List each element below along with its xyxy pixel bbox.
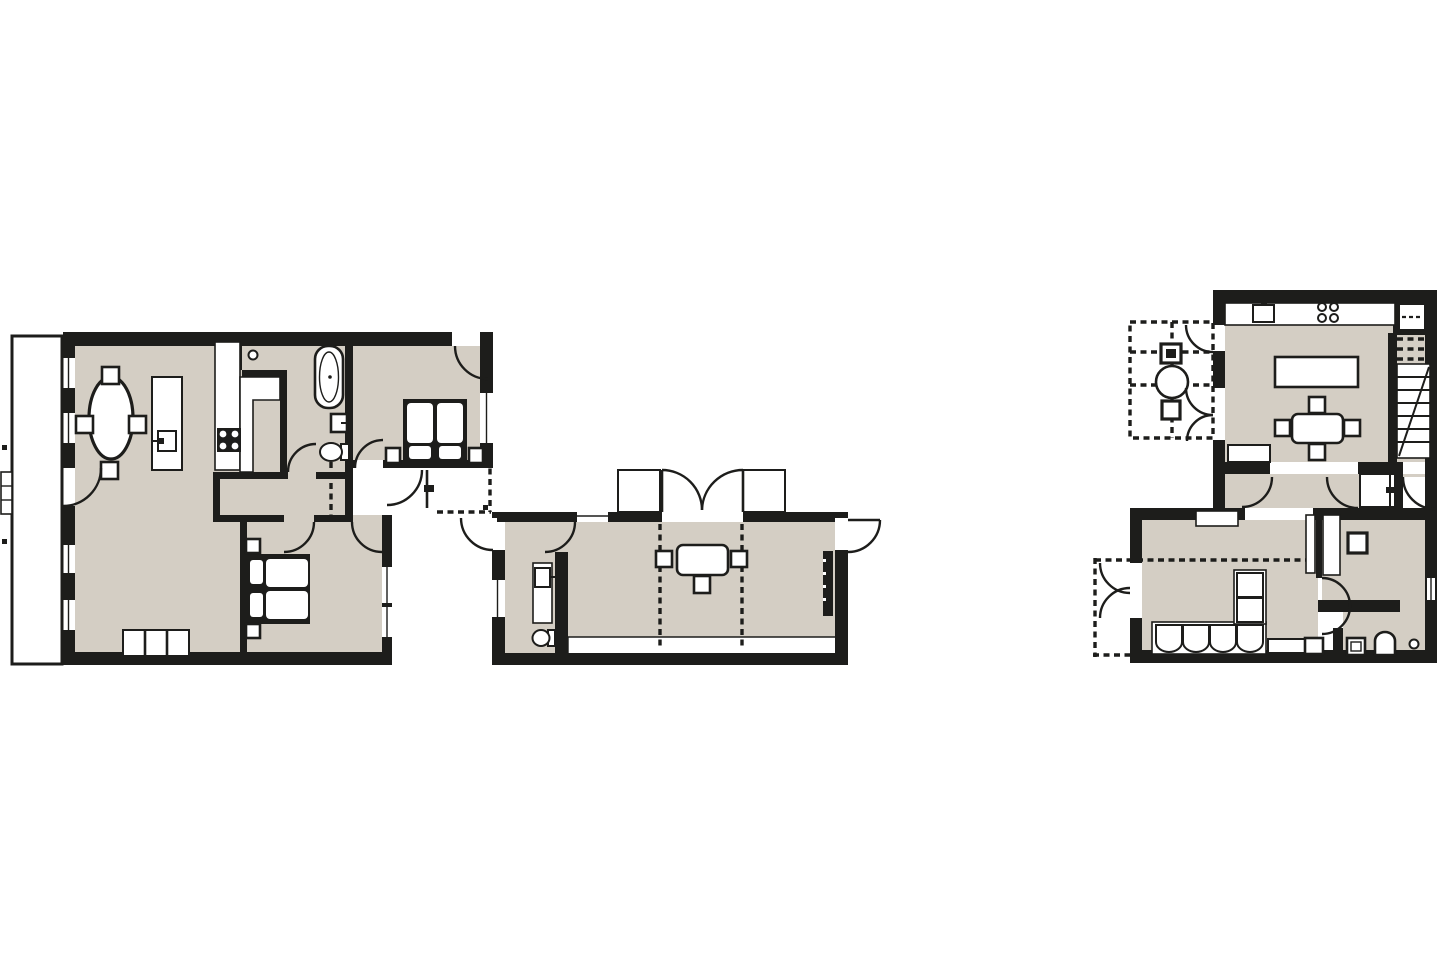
living-room	[123, 630, 189, 656]
chair	[129, 416, 146, 433]
wc-basin-icon	[249, 351, 258, 360]
nightstand	[246, 624, 260, 638]
wall-pass-square	[1348, 533, 1367, 553]
toilet	[533, 630, 550, 646]
chair	[1309, 444, 1325, 460]
balcony-strip	[1, 336, 62, 664]
house-window	[1427, 578, 1435, 600]
pergola	[1130, 322, 1213, 438]
sofa-cushion	[1237, 625, 1263, 652]
right-house-plan	[1093, 290, 1437, 663]
washbasin	[1347, 638, 1365, 655]
toilet	[1375, 632, 1395, 655]
oval-dining-table	[89, 377, 133, 459]
sofa-3-seat	[123, 630, 189, 656]
sofa-cushion	[1237, 573, 1263, 597]
burner	[1318, 314, 1326, 322]
staircase	[1397, 364, 1430, 458]
dining-table	[1292, 414, 1343, 443]
left-apartment-plan	[1, 332, 493, 665]
chair	[76, 416, 93, 433]
wall-niche	[1196, 511, 1238, 526]
terrace-slab	[618, 470, 660, 512]
chair	[1275, 420, 1290, 436]
chair	[101, 462, 118, 479]
floor-plan-canvas	[0, 0, 1440, 960]
table	[677, 545, 728, 575]
sofa-cushion	[1156, 625, 1182, 652]
balcony-ladder	[1, 472, 12, 514]
pergola-square	[1162, 401, 1180, 419]
pocket-door-panel	[1306, 515, 1315, 573]
chair	[731, 551, 747, 567]
pergola-circle	[1156, 366, 1188, 398]
toilet	[320, 443, 342, 461]
kitchen-island	[152, 377, 182, 470]
floor-step-band	[568, 637, 835, 653]
middle-pavilion-plan	[461, 470, 880, 665]
kitchen-island	[1275, 357, 1358, 387]
kitchen-sink	[1253, 305, 1274, 322]
nightstand	[246, 539, 260, 553]
sofa-cushion	[1237, 598, 1263, 622]
burner	[1318, 303, 1326, 311]
door-handle	[424, 485, 434, 492]
terrace-slab	[743, 470, 785, 512]
chimney-closet	[1399, 304, 1425, 330]
burner	[1330, 314, 1338, 322]
floor-plan-sheet	[0, 0, 1440, 960]
entry-porch	[424, 470, 434, 508]
floor-drain	[1410, 640, 1419, 649]
vanity-sink	[535, 568, 550, 587]
burner	[1330, 303, 1338, 311]
nightstand	[469, 448, 483, 463]
pocket-door-panel	[1323, 515, 1340, 575]
chair	[1344, 420, 1360, 436]
radiator	[823, 551, 833, 616]
cabinet-square	[1305, 638, 1323, 654]
chair	[102, 367, 119, 384]
chair	[656, 551, 672, 567]
bench	[1228, 445, 1270, 462]
nightstand	[386, 448, 400, 463]
chair	[694, 576, 710, 593]
faucet	[1261, 299, 1267, 305]
sofa-cushion	[1210, 625, 1236, 652]
chair	[1309, 397, 1325, 413]
kitchen-counter	[1225, 303, 1395, 325]
sofa-cushion	[1183, 625, 1209, 652]
corridor-closet	[1360, 474, 1395, 507]
